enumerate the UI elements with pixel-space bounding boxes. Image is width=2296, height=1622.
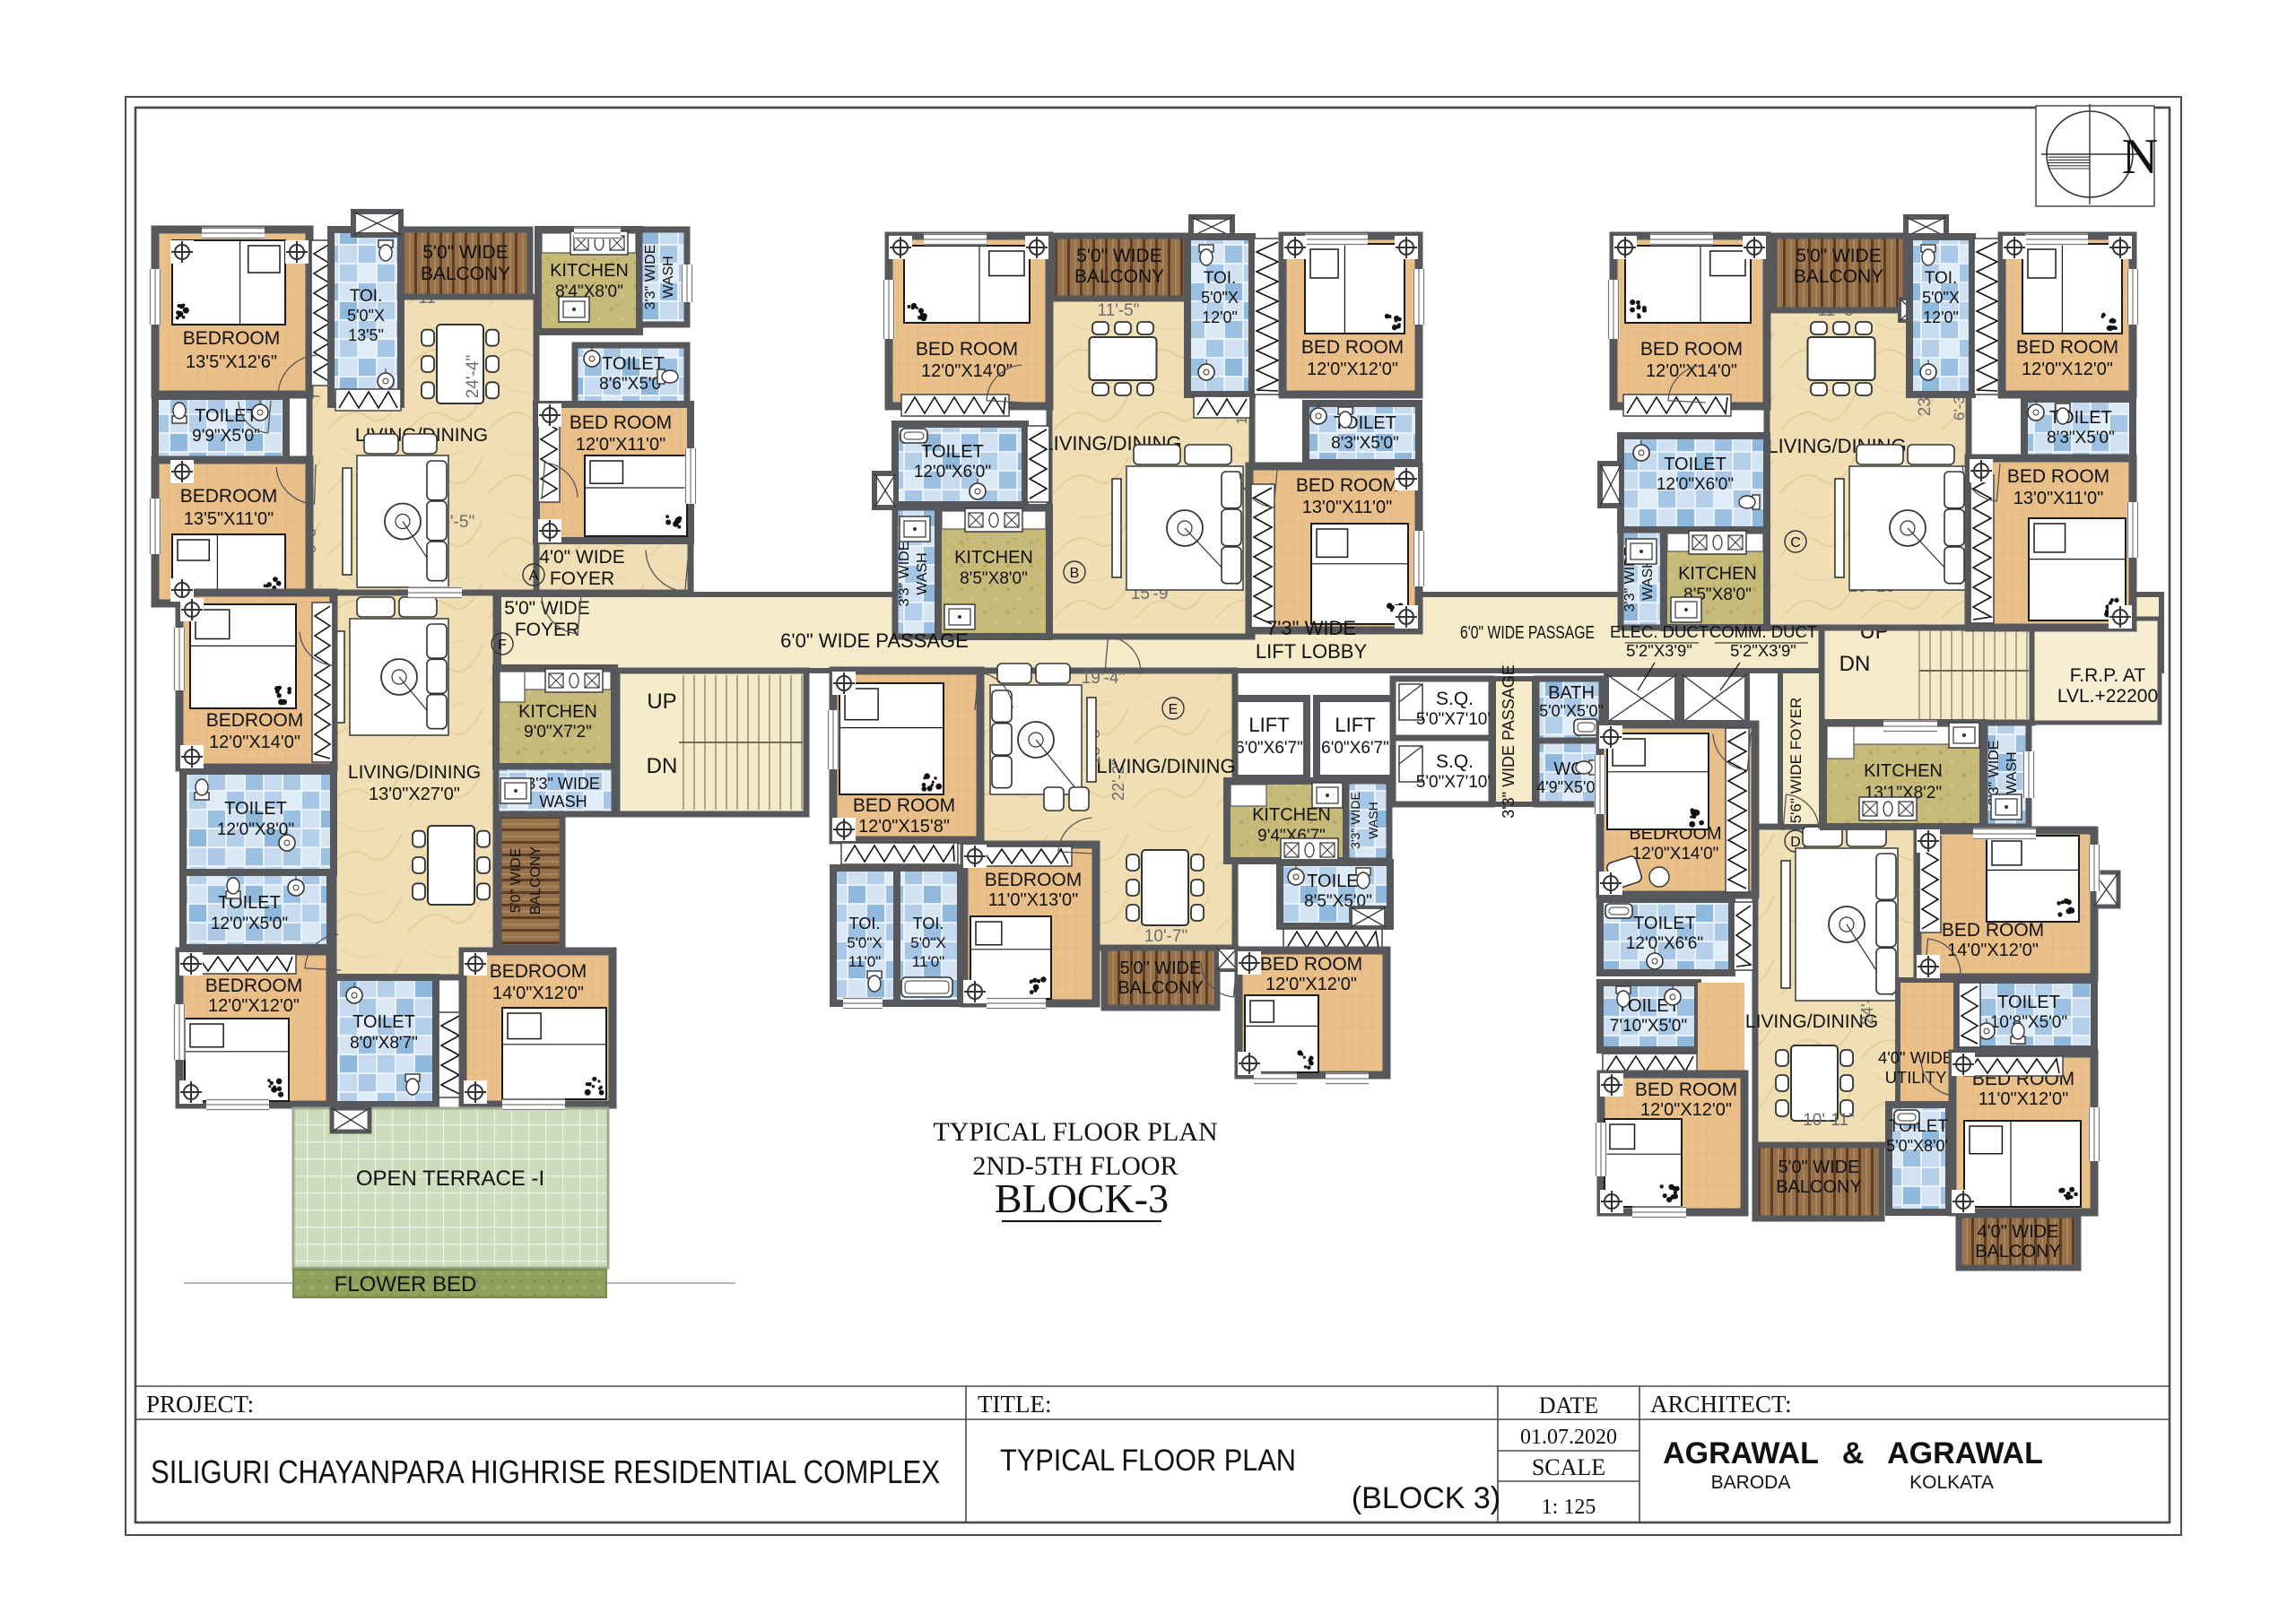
- svg-text:5'0" WIDE: 5'0" WIDE: [1779, 1158, 1860, 1177]
- svg-text:S.Q.: S.Q.: [1436, 689, 1474, 709]
- svg-text:LVL.+22200: LVL.+22200: [2057, 686, 2158, 707]
- svg-text:13'0"X11'0": 13'0"X11'0": [2013, 489, 2103, 508]
- svg-text:FLOWER BED: FLOWER BED: [335, 1272, 477, 1297]
- svg-text:PROJECT:: PROJECT:: [146, 1391, 254, 1418]
- svg-text:6'0" WIDE PASSAGE: 6'0" WIDE PASSAGE: [780, 629, 969, 652]
- svg-text:KITCHEN: KITCHEN: [954, 548, 1033, 568]
- svg-text:SCALE: SCALE: [1532, 1454, 1605, 1480]
- svg-text:WASH: WASH: [539, 793, 587, 811]
- svg-text:BEDROOM: BEDROOM: [490, 961, 587, 982]
- svg-text:10'-7": 10'-7": [1144, 927, 1187, 946]
- svg-text:BALCONY: BALCONY: [1118, 978, 1204, 998]
- svg-text:5'0"X: 5'0"X: [1201, 289, 1239, 307]
- svg-text:WASH: WASH: [661, 256, 676, 298]
- svg-text:A: A: [529, 568, 539, 584]
- svg-text:BALCONY: BALCONY: [421, 264, 510, 284]
- svg-text:WASH: WASH: [2005, 751, 2020, 794]
- svg-text:E: E: [1169, 702, 1178, 717]
- svg-text:BED ROOM: BED ROOM: [1296, 475, 1398, 496]
- svg-text:BED ROOM: BED ROOM: [2007, 466, 2109, 487]
- svg-text:12'0"X14'0": 12'0"X14'0": [1632, 845, 1719, 863]
- svg-text:DATE: DATE: [1539, 1392, 1598, 1418]
- svg-text:13'0"X11'0": 13'0"X11'0": [1302, 498, 1392, 517]
- svg-text:12'0"X14'0": 12'0"X14'0": [1646, 361, 1737, 381]
- svg-text:F.R.P. AT: F.R.P. AT: [2070, 665, 2146, 686]
- svg-text:12'0"X14'0": 12'0"X14'0": [921, 361, 1013, 381]
- svg-text:11'-5": 11'-5": [1098, 301, 1140, 320]
- svg-text:5'0"X: 5'0"X: [910, 934, 946, 951]
- svg-text:5'0" WIDE: 5'0" WIDE: [1076, 246, 1161, 266]
- svg-text:TITLE:: TITLE:: [978, 1391, 1051, 1418]
- svg-text:8'3"X5'0": 8'3"X5'0": [1331, 434, 1399, 453]
- svg-text:8'3"X5'0": 8'3"X5'0": [2047, 429, 2115, 447]
- svg-text:5'2"X3'9": 5'2"X3'9": [1730, 641, 1796, 660]
- svg-text:WASH: WASH: [915, 552, 930, 594]
- svg-text:13'5": 13'5": [348, 326, 384, 344]
- svg-text:ARCHITECT:: ARCHITECT:: [1650, 1391, 1792, 1418]
- svg-text:BALCONY: BALCONY: [1776, 1177, 1862, 1197]
- svg-text:&: &: [1842, 1436, 1865, 1470]
- svg-text:11'0"X12'0": 11'0"X12'0": [1979, 1089, 2068, 1109]
- svg-text:8'0"X8'7": 8'0"X8'7": [350, 1034, 418, 1053]
- svg-text:14'0"X12'0": 14'0"X12'0": [1947, 941, 2039, 960]
- svg-text:TYPICAL FLOOR PLAN: TYPICAL FLOOR PLAN: [933, 1117, 1217, 1147]
- svg-text:12'0": 12'0": [1923, 308, 1959, 326]
- svg-text:KOLKATA: KOLKATA: [1909, 1472, 1994, 1493]
- svg-text:5'0" WIDE: 5'0" WIDE: [509, 848, 524, 914]
- svg-text:TOILET: TOILET: [602, 354, 665, 374]
- svg-text:TOI.: TOI.: [1925, 269, 1958, 288]
- svg-text:BED ROOM: BED ROOM: [1635, 1080, 1737, 1100]
- svg-text:KITCHEN: KITCHEN: [1678, 564, 1757, 584]
- svg-text:KITCHEN: KITCHEN: [1864, 761, 1943, 781]
- svg-text:3'3" WIDE: 3'3" WIDE: [1348, 792, 1362, 849]
- svg-text:12'0"X15'8": 12'0"X15'8": [858, 817, 950, 837]
- svg-text:01.07.2020: 01.07.2020: [1520, 1426, 1617, 1449]
- svg-text:5'0" WIDE: 5'0" WIDE: [1796, 246, 1881, 266]
- svg-text:TOILET: TOILET: [352, 1012, 415, 1032]
- svg-text:SILIGURI CHAYANPARA HIGHRISE R: SILIGURI CHAYANPARA HIGHRISE RESIDENTIAL…: [151, 1453, 940, 1490]
- svg-text:19'-4": 19'-4": [1082, 669, 1125, 688]
- svg-text:BEDROOM: BEDROOM: [206, 710, 304, 731]
- svg-text:5'0"X5'0": 5'0"X5'0": [1539, 702, 1604, 720]
- svg-text:8'5"X8'0": 8'5"X8'0": [960, 569, 1028, 588]
- svg-text:(BLOCK 3): (BLOCK 3): [1352, 1481, 1500, 1515]
- svg-text:BALCONY: BALCONY: [528, 846, 544, 915]
- svg-text:5'0"X7'10": 5'0"X7'10": [1416, 773, 1493, 792]
- svg-text:BEDROOM: BEDROOM: [183, 328, 281, 349]
- svg-text:BED ROOM: BED ROOM: [2016, 337, 2118, 358]
- svg-text:9'9"X5'0": 9'9"X5'0": [192, 427, 260, 446]
- svg-text:LIFT LOBBY: LIFT LOBBY: [1256, 640, 1368, 663]
- svg-text:BALCONY: BALCONY: [1794, 266, 1883, 287]
- svg-text:AGRAWAL: AGRAWAL: [1663, 1436, 1819, 1470]
- svg-text:1: 125: 1: 125: [1542, 1496, 1596, 1519]
- svg-text:TOI.: TOI.: [913, 915, 944, 932]
- svg-text:13'0"X27'0": 13'0"X27'0": [369, 785, 460, 804]
- svg-text:BED ROOM: BED ROOM: [1942, 920, 2044, 941]
- svg-text:5'0" WIDE: 5'0" WIDE: [1120, 958, 1202, 978]
- svg-text:3'3" WIDE PASSAGE: 3'3" WIDE PASSAGE: [1500, 664, 1518, 819]
- svg-text:DN: DN: [647, 754, 678, 778]
- svg-text:5'0"X: 5'0"X: [847, 934, 883, 951]
- svg-text:12'0"X6'0": 12'0"X6'0": [914, 463, 991, 481]
- svg-text:3'3" WIDE: 3'3" WIDE: [643, 245, 658, 310]
- svg-text:12'0"X14'0": 12'0"X14'0": [209, 733, 300, 752]
- svg-text:4'9"X5'0": 4'9"X5'0": [1536, 778, 1601, 796]
- svg-text:3'3" WIDE: 3'3" WIDE: [526, 775, 600, 793]
- svg-text:COMM. DUCT: COMM. DUCT: [1709, 622, 1817, 641]
- svg-text:BED ROOM: BED ROOM: [853, 795, 955, 816]
- svg-text:7'3" WIDE: 7'3" WIDE: [1266, 617, 1356, 639]
- svg-text:TOI.: TOI.: [1204, 269, 1237, 288]
- svg-text:9'0"X7'2": 9'0"X7'2": [524, 723, 592, 742]
- svg-text:WASH: WASH: [1366, 802, 1380, 838]
- svg-text:11'0": 11'0": [848, 953, 881, 970]
- svg-text:13'5"X12'6": 13'5"X12'6": [186, 352, 277, 372]
- svg-text:5'0"X: 5'0"X: [347, 307, 385, 325]
- svg-text:BED ROOM: BED ROOM: [916, 339, 1018, 360]
- svg-text:4'0" WIDE: 4'0" WIDE: [1978, 1222, 2059, 1242]
- svg-text:TOILET: TOILET: [1633, 914, 1696, 933]
- svg-text:10'-11": 10'-11": [1803, 1111, 1855, 1130]
- svg-text:5'0"X7'10": 5'0"X7'10": [1416, 710, 1493, 729]
- svg-text:C: C: [1790, 535, 1801, 551]
- svg-text:BLOCK-3: BLOCK-3: [995, 1175, 1169, 1221]
- svg-text:5'2"X3'9": 5'2"X3'9": [1626, 641, 1692, 660]
- svg-text:BATH: BATH: [1548, 683, 1595, 703]
- svg-text:12'0"X12'0": 12'0"X12'0": [2022, 360, 2113, 379]
- svg-text:12'0"X6'6": 12'0"X6'6": [1626, 934, 1703, 953]
- svg-text:BED ROOM: BED ROOM: [570, 412, 672, 433]
- svg-text:BALCONY: BALCONY: [1074, 266, 1164, 287]
- svg-text:7'10"X5'0": 7'10"X5'0": [1610, 1017, 1687, 1036]
- svg-text:6'0"X6'7": 6'0"X6'7": [1235, 739, 1303, 758]
- svg-text:LIVING/DINING: LIVING/DINING: [348, 762, 481, 783]
- svg-text:TOI.: TOI.: [350, 287, 383, 306]
- svg-text:BEDROOM: BEDROOM: [180, 486, 278, 507]
- svg-text:10'8"X5'0": 10'8"X5'0": [1990, 1013, 2067, 1032]
- svg-text:14'0"X12'0": 14'0"X12'0": [492, 984, 584, 1003]
- svg-text:TYPICAL FLOOR PLAN: TYPICAL FLOOR PLAN: [1000, 1444, 1296, 1478]
- svg-text:11'0"X13'0": 11'0"X13'0": [988, 890, 1078, 910]
- svg-text:KITCHEN: KITCHEN: [550, 261, 629, 281]
- svg-text:UTILITY: UTILITY: [1885, 1068, 1947, 1087]
- svg-text:F: F: [498, 638, 507, 653]
- svg-text:B: B: [1070, 566, 1080, 581]
- svg-text:22'-2": 22'-2": [1109, 759, 1127, 801]
- svg-text:UP: UP: [647, 690, 676, 714]
- svg-text:N: N: [2122, 129, 2158, 185]
- svg-text:AGRAWAL: AGRAWAL: [1887, 1436, 2043, 1470]
- svg-text:ELEC. DUCT: ELEC. DUCT: [1610, 622, 1709, 641]
- svg-text:TOILET: TOILET: [1997, 993, 2060, 1012]
- svg-text:12'0"X11'0": 12'0"X11'0": [576, 435, 665, 455]
- svg-text:12'0"X12'0": 12'0"X12'0": [1640, 1100, 1732, 1120]
- svg-text:BALCONY: BALCONY: [1975, 1242, 2061, 1262]
- svg-text:12'0"X5'0": 12'0"X5'0": [211, 915, 288, 933]
- svg-text:6'0"X6'7": 6'0"X6'7": [1321, 739, 1389, 758]
- svg-text:TOI.: TOI.: [849, 915, 881, 932]
- svg-text:BEDROOM: BEDROOM: [985, 870, 1083, 890]
- svg-text:BED ROOM: BED ROOM: [1640, 339, 1743, 360]
- svg-text:KITCHEN: KITCHEN: [518, 702, 597, 722]
- svg-text:6'0" WIDE PASSAGE: 6'0" WIDE PASSAGE: [1460, 623, 1595, 643]
- svg-text:4'0" WIDE: 4'0" WIDE: [1878, 1048, 1953, 1067]
- svg-text:S.Q.: S.Q.: [1436, 751, 1474, 772]
- svg-text:LIFT: LIFT: [1335, 714, 1375, 736]
- svg-text:BEDROOM: BEDROOM: [205, 976, 303, 996]
- svg-text:4'0" WIDE: 4'0" WIDE: [539, 547, 624, 568]
- svg-text:12'0"X12'0": 12'0"X12'0": [1265, 975, 1357, 994]
- svg-text:11'0": 11'0": [912, 953, 944, 970]
- svg-text:12'0"X12'0": 12'0"X12'0": [208, 996, 300, 1016]
- svg-text:5'0"X8'0": 5'0"X8'0": [1886, 1137, 1951, 1155]
- svg-text:12'0"X6'0": 12'0"X6'0": [1657, 475, 1734, 494]
- svg-text:BED ROOM: BED ROOM: [1301, 337, 1404, 358]
- svg-text:BED ROOM: BED ROOM: [1260, 954, 1362, 975]
- svg-text:13'5"X11'0": 13'5"X11'0": [184, 509, 274, 529]
- svg-text:OPEN TERRACE -I: OPEN TERRACE -I: [356, 1167, 544, 1191]
- svg-text:LIFT: LIFT: [1248, 714, 1289, 736]
- svg-text:5'6" WIDE FOYER: 5'6" WIDE FOYER: [1787, 698, 1805, 824]
- svg-text:FOYER: FOYER: [550, 568, 614, 589]
- svg-text:TOILET: TOILET: [1664, 455, 1726, 474]
- svg-text:TOILET: TOILET: [921, 442, 984, 462]
- svg-text:12'0": 12'0": [1202, 308, 1238, 326]
- svg-text:5'0" WIDE: 5'0" WIDE: [422, 242, 508, 263]
- svg-text:DN: DN: [1839, 652, 1871, 676]
- svg-text:5'0"X: 5'0"X: [1922, 289, 1960, 307]
- svg-text:12'0"X12'0": 12'0"X12'0": [1307, 360, 1398, 379]
- svg-text:24'-4": 24'-4": [464, 355, 483, 398]
- svg-text:BARODA: BARODA: [1711, 1472, 1791, 1493]
- svg-text:3'3" WIDE: 3'3" WIDE: [897, 542, 912, 607]
- svg-text:FOYER: FOYER: [515, 620, 579, 640]
- svg-text:TOILET: TOILET: [224, 799, 287, 819]
